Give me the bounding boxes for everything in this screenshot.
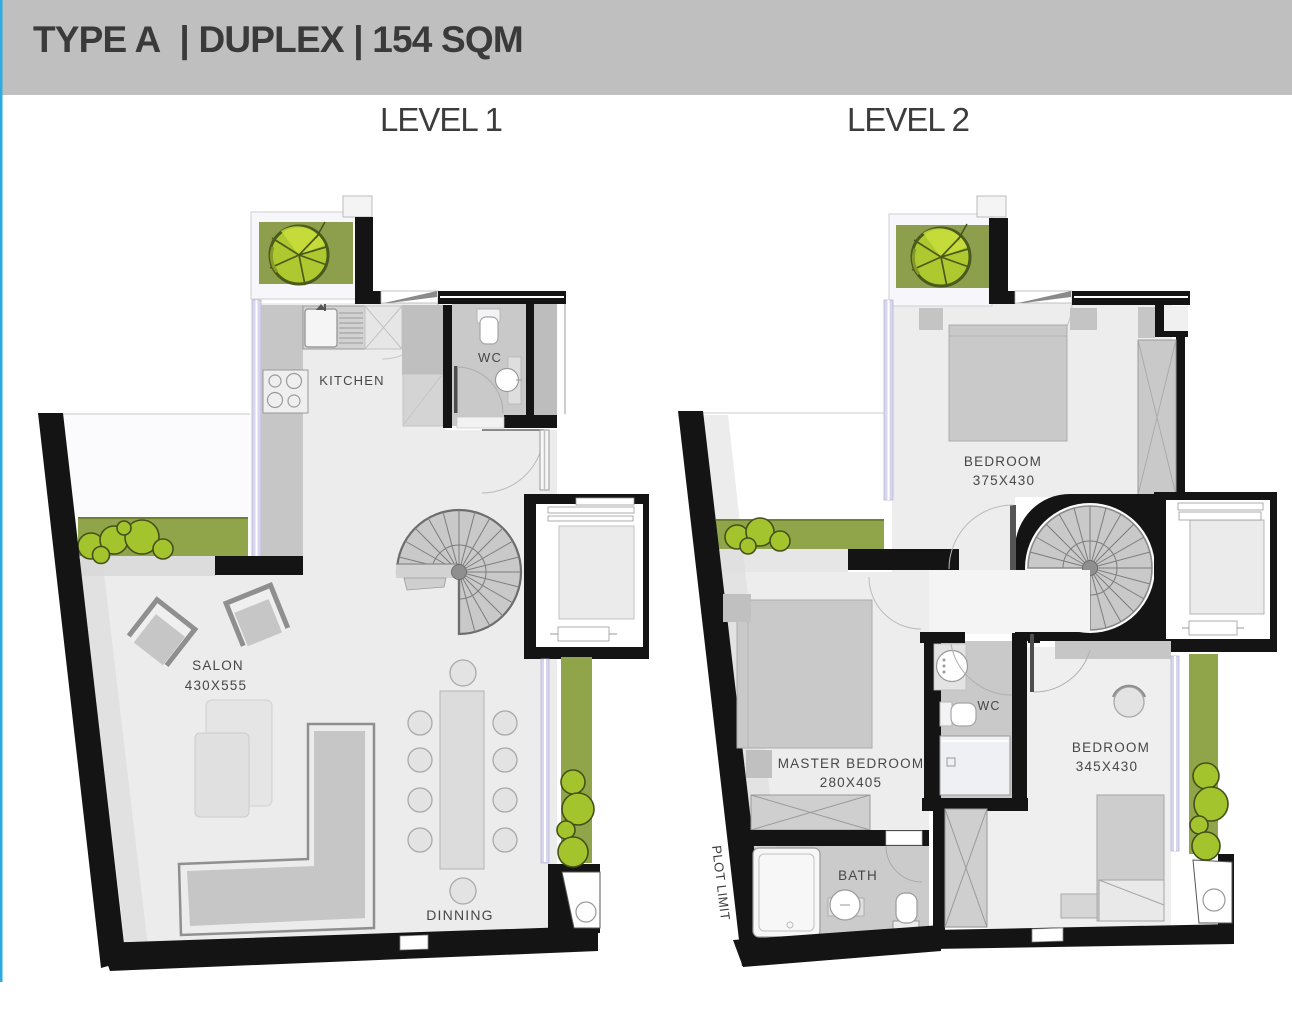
svg-text:BATH: BATH: [838, 868, 878, 883]
svg-text:TYPE A | DUPLEX | 154 SQM: TYPE A | DUPLEX | 154 SQM: [33, 19, 523, 61]
svg-text:280X405: 280X405: [820, 775, 882, 790]
svg-text:345X430: 345X430: [1076, 759, 1138, 774]
svg-text:BEDROOM: BEDROOM: [1072, 740, 1150, 755]
svg-text:BEDROOM: BEDROOM: [964, 454, 1042, 469]
svg-text:WC: WC: [478, 350, 502, 365]
svg-text:SALON: SALON: [192, 658, 244, 673]
svg-text:WC: WC: [977, 699, 1000, 713]
svg-text:430X555: 430X555: [185, 678, 247, 693]
svg-text:375X430: 375X430: [973, 473, 1035, 488]
svg-text:LEVEL 1: LEVEL 1: [380, 101, 502, 138]
svg-text:KITCHEN: KITCHEN: [319, 373, 384, 388]
svg-text:MASTER BEDROOM: MASTER BEDROOM: [778, 756, 925, 771]
svg-text:DINNING: DINNING: [426, 907, 494, 923]
svg-text:LEVEL 2: LEVEL 2: [847, 101, 969, 138]
